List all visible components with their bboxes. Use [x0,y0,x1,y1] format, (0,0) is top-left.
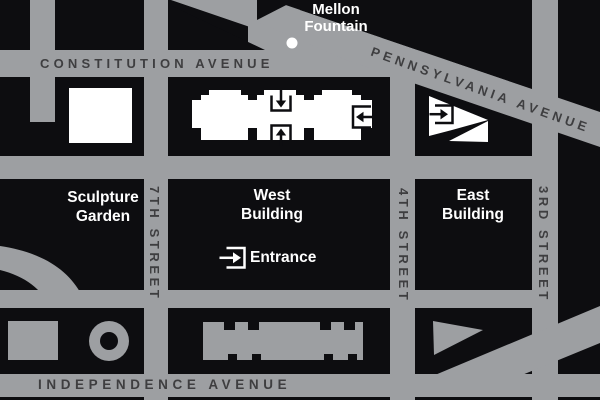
mellon-fountain-label: Mellon Fountain [276,2,396,35]
carousel-ring-hole [100,332,118,350]
east-building-label-line1: East [413,186,533,205]
fourth-street-label: 4TH STREET [396,188,411,303]
west-building-label-line1: West [212,186,332,205]
smithsonian-building-footprint [203,322,363,360]
mall-building [8,321,58,360]
west-building-label-line2: Building [212,205,332,224]
sculpture-garden-label: Sculpture Garden [43,188,163,226]
constitution-avenue-label: CONSTITUTION AVENUE [40,56,274,71]
west-building-label: West Building [212,186,332,224]
east-building-label: East Building [413,186,533,224]
main-entrance-label: Entrance [250,249,316,267]
sculpture-garden-label-line2: Garden [43,207,163,226]
mellon-fountain-dot-icon [287,38,298,49]
mellon-fountain-label-line1: Mellon [276,2,396,19]
mellon-fountain-label-line2: Fountain [276,19,396,36]
independence-avenue-label: INDEPENDENCE AVENUE [38,377,291,392]
east-building-label-line2: Building [413,205,533,224]
madison-drive-road [0,156,558,179]
sculpture-garden-label-line1: Sculpture [43,188,163,207]
federal-building-footprint [69,88,132,143]
third-street-label: 3RD STREET [536,186,551,303]
map-canvas: CONSTITUTION AVENUE PENNSYLVANIA AVENUE … [0,0,600,400]
